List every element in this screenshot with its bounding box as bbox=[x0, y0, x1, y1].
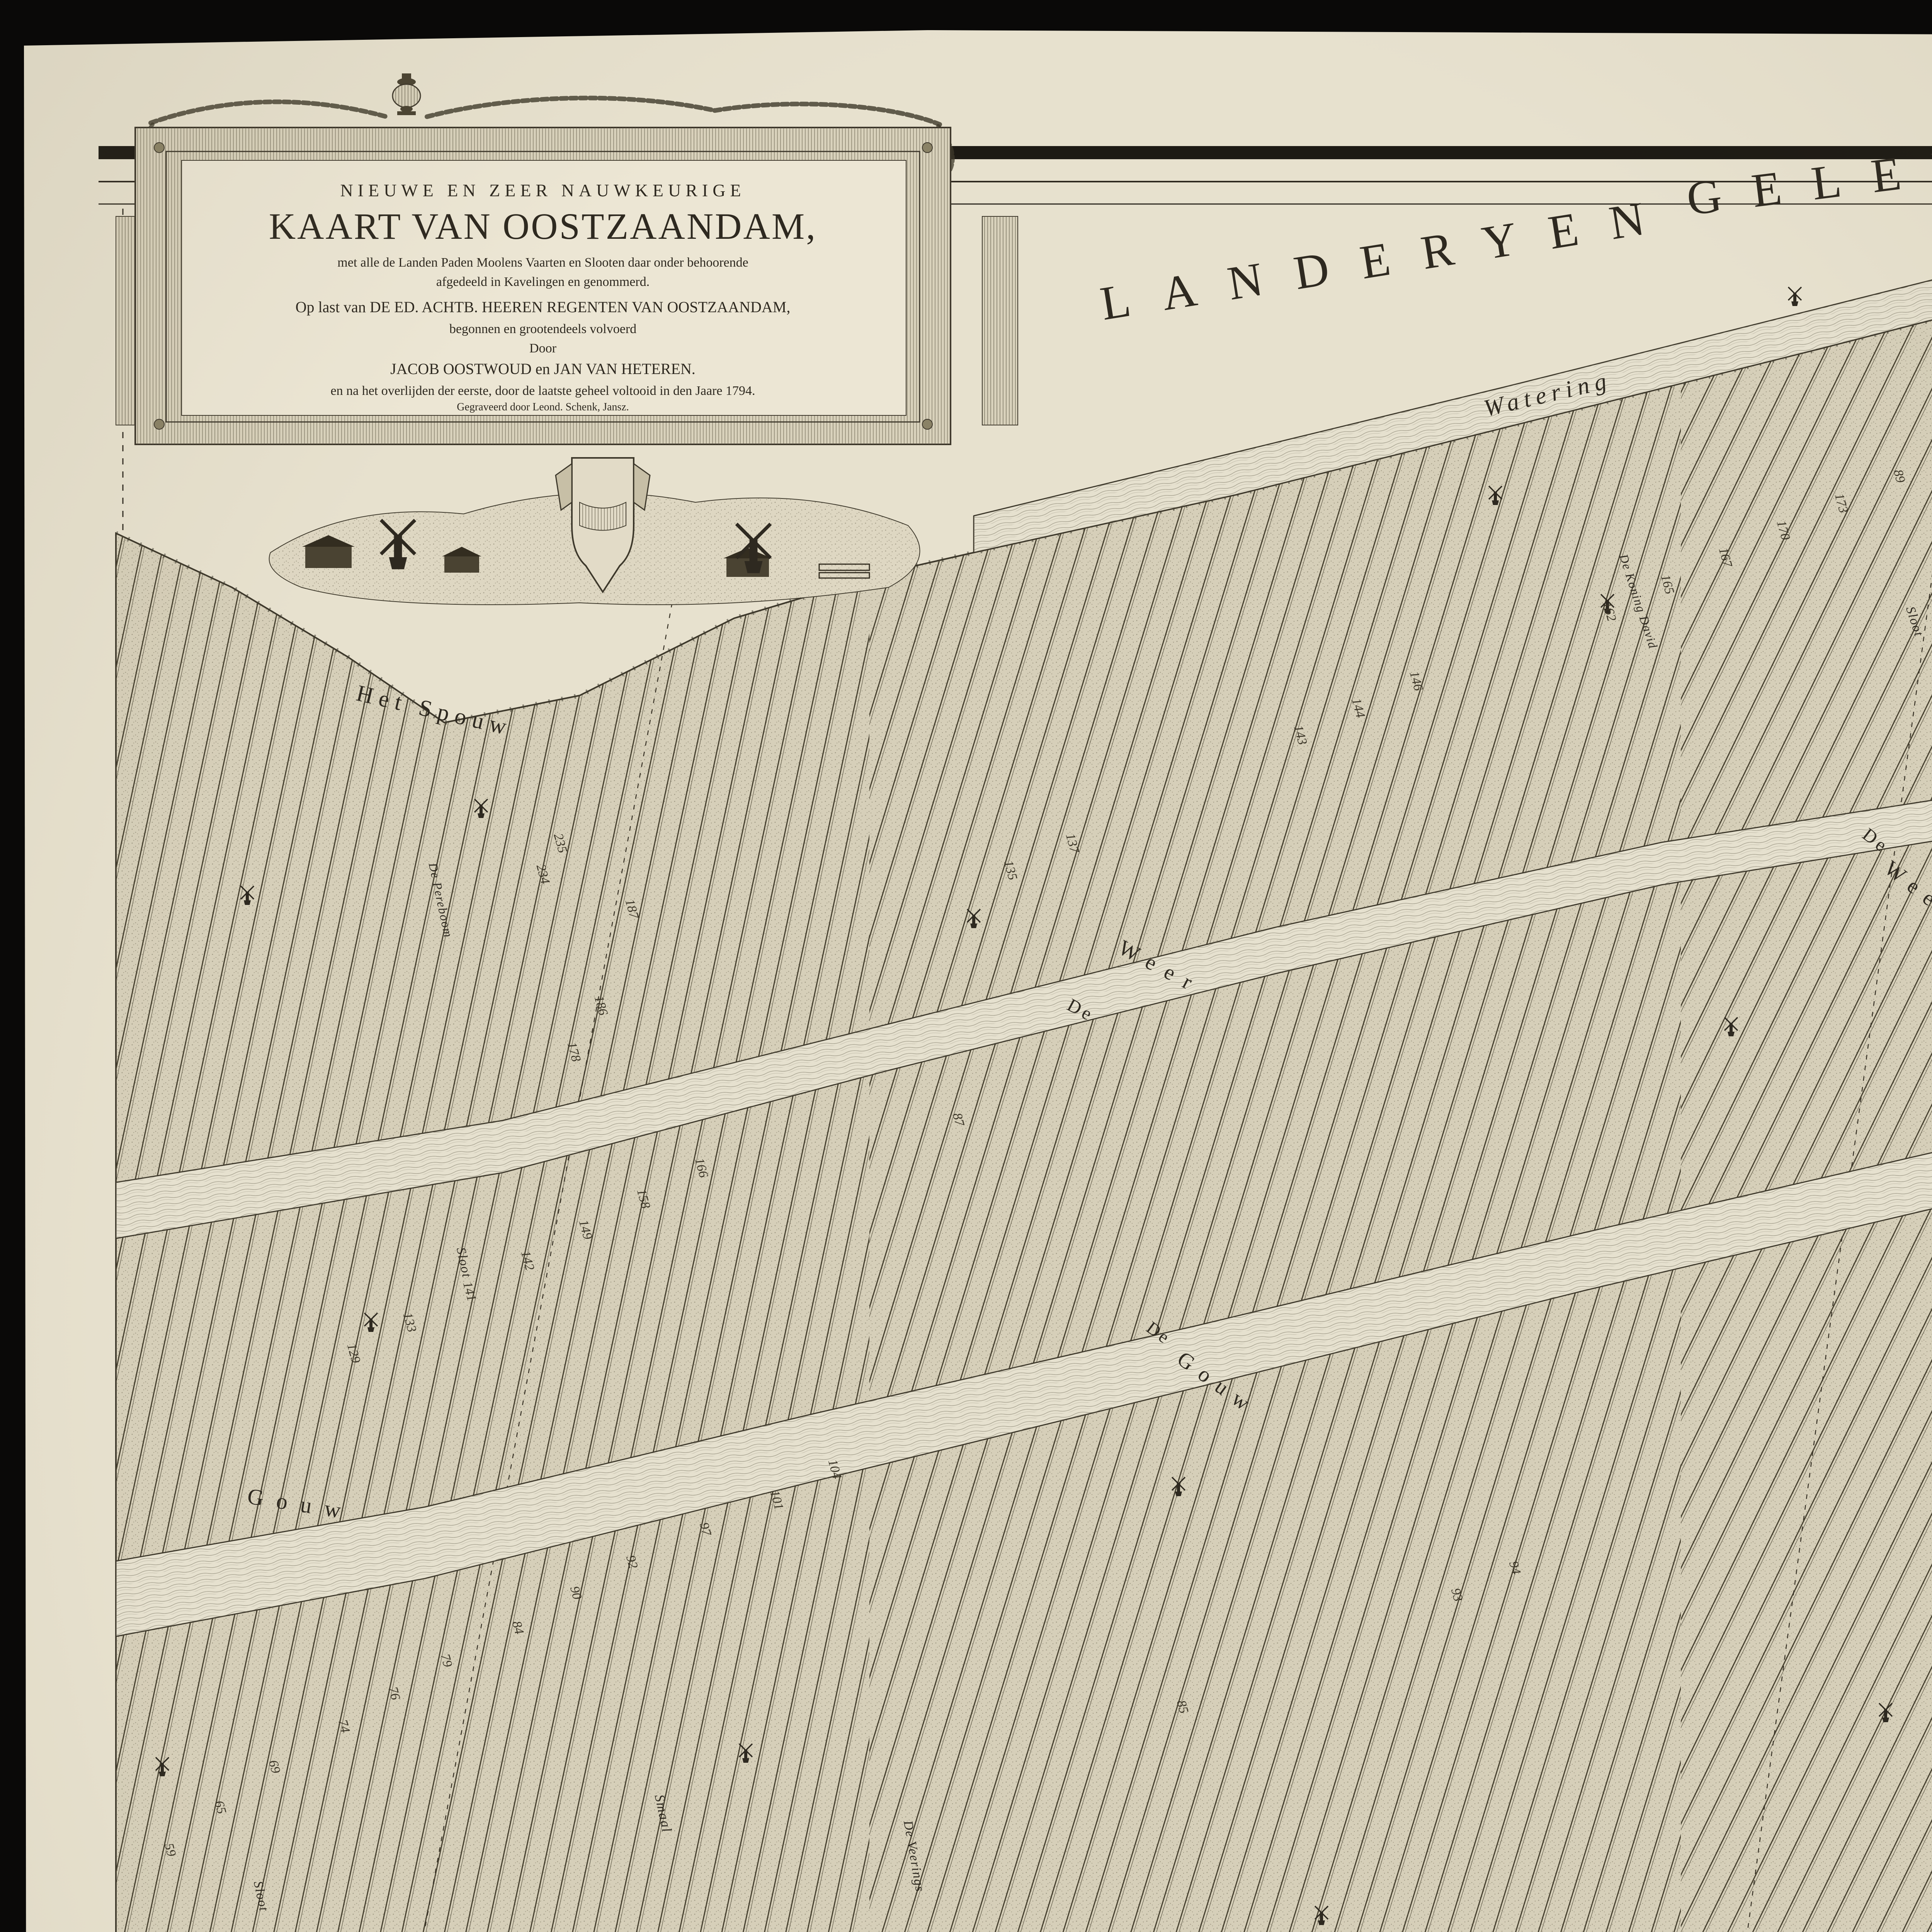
map-sheet: NIEUWE EN ZEER NAUWKEURIGE KAART VAN OOS… bbox=[0, 0, 1932, 1932]
map-svg: NIEUWE EN ZEER NAUWKEURIGE KAART VAN OOS… bbox=[0, 0, 1932, 1932]
aging-overlay bbox=[24, 30, 1932, 1932]
